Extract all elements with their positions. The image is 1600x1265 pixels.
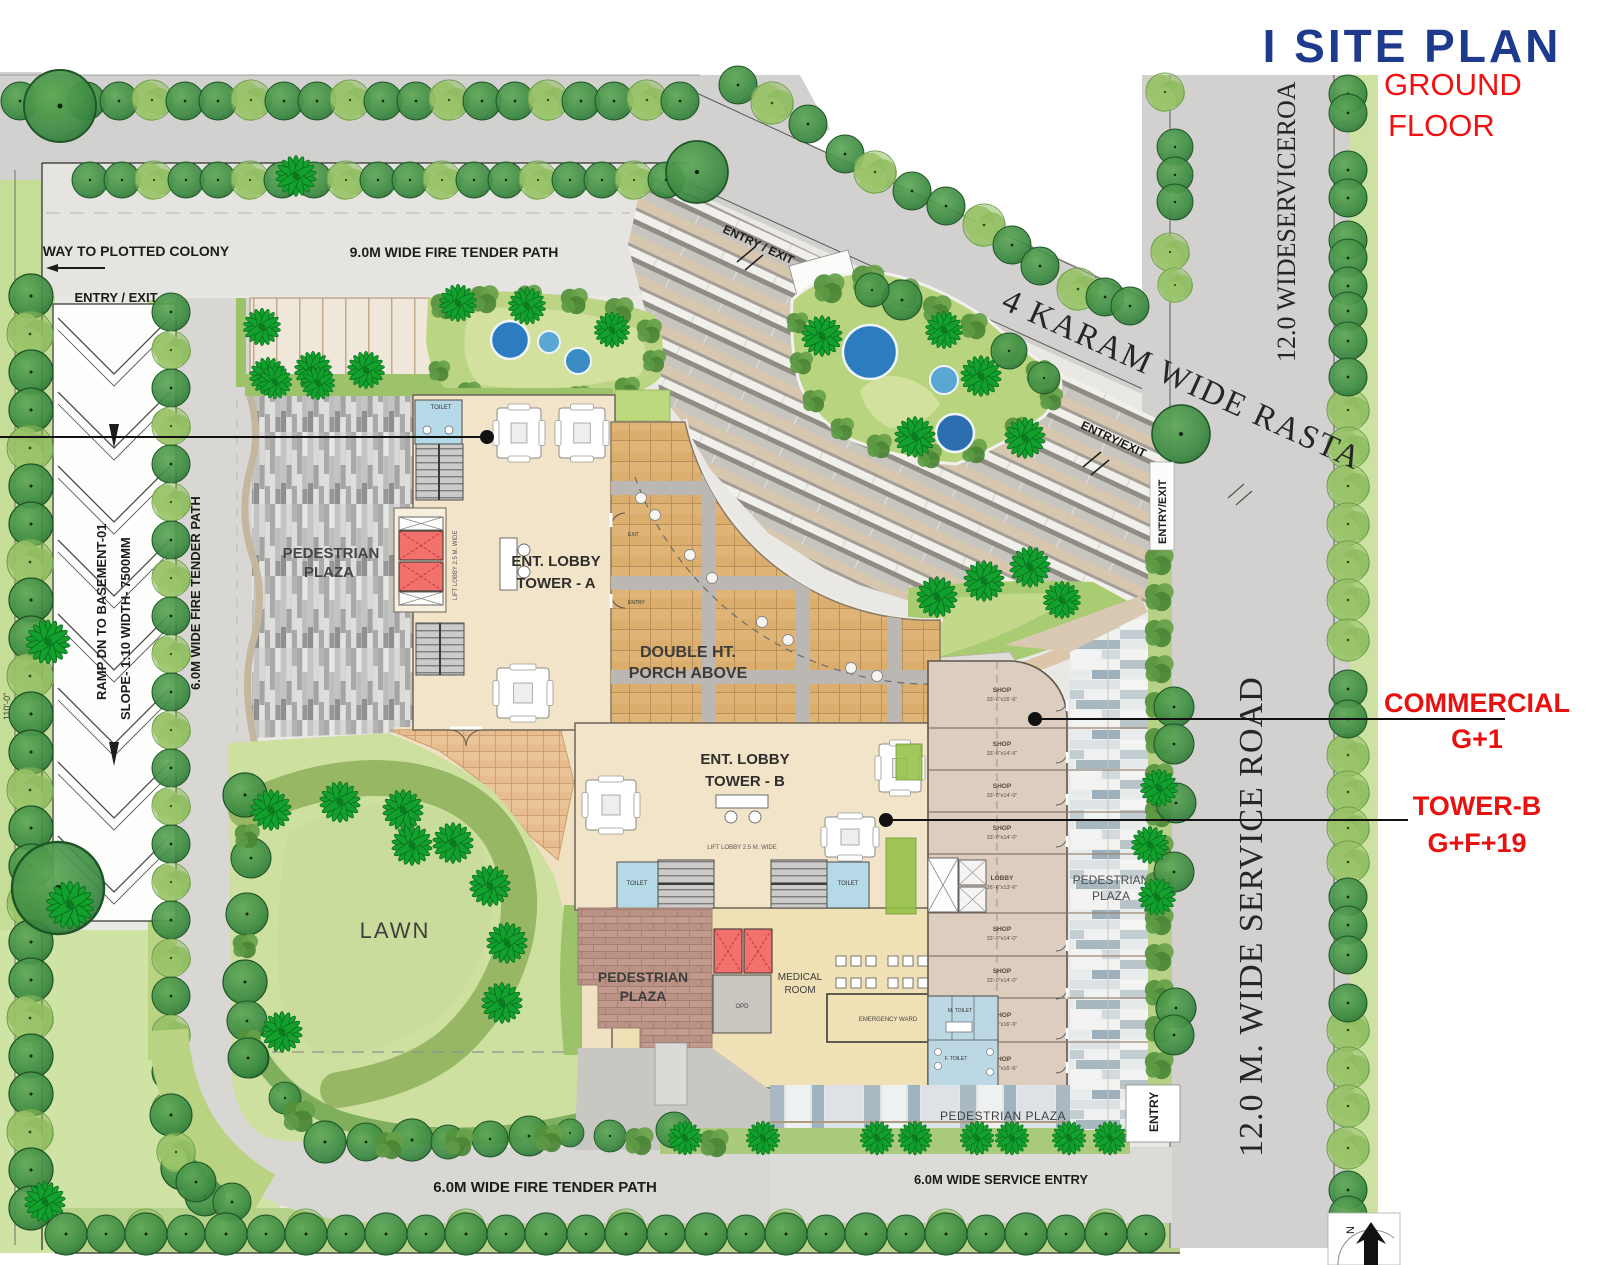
- svg-text:33'-0"x14'-0": 33'-0"x14'-0": [987, 978, 1018, 984]
- svg-text:M. TOILET: M. TOILET: [948, 1008, 972, 1014]
- svg-text:SHOP: SHOP: [993, 741, 1012, 748]
- svg-text:PEDESTRIAN: PEDESTRIAN: [283, 545, 380, 562]
- svg-text:ENTRY / EXIT: ENTRY / EXIT: [74, 290, 157, 305]
- svg-text:SHOP: SHOP: [993, 783, 1012, 790]
- svg-text:6.0M WIDE SERVICE ENTRY: 6.0M WIDE SERVICE ENTRY: [914, 1172, 1088, 1187]
- svg-text:ENT. LOBBY: ENT. LOBBY: [700, 751, 789, 768]
- svg-text:PEDESTRIAN: PEDESTRIAN: [598, 969, 688, 985]
- svg-text:PLAZA: PLAZA: [304, 564, 354, 581]
- svg-text:PLAZA: PLAZA: [1092, 889, 1130, 903]
- svg-text:SLOPE- 1:10 WIDTH- 7500MM: SLOPE- 1:10 WIDTH- 7500MM: [118, 537, 133, 720]
- svg-text:LIFT LOBBY 2.5 M. WIDE: LIFT LOBBY 2.5 M. WIDE: [707, 845, 776, 851]
- svg-text:FLOOR: FLOOR: [1388, 108, 1495, 143]
- svg-text:TOWER - B: TOWER - B: [705, 773, 785, 790]
- svg-text:I SITE PLAN: I SITE PLAN: [1263, 20, 1562, 72]
- svg-text:DOUBLE HT.: DOUBLE HT.: [640, 644, 736, 661]
- svg-text:SHOP: SHOP: [993, 825, 1012, 832]
- svg-text:PEDESTRIAN: PEDESTRIAN: [1073, 873, 1150, 887]
- svg-text:33'-0"x14'-0": 33'-0"x14'-0": [987, 835, 1018, 841]
- svg-text:ENTRY: ENTRY: [1147, 1092, 1161, 1132]
- svg-text:TOILET: TOILET: [627, 881, 648, 887]
- svg-text:33'-6"x14'-6": 33'-6"x14'-6": [987, 751, 1018, 757]
- svg-text:LAWN: LAWN: [360, 918, 431, 943]
- svg-text:SHOP: SHOP: [993, 687, 1012, 694]
- svg-text:6.0M WIDE FIRE TENDER PATH: 6.0M WIDE FIRE TENDER PATH: [433, 1179, 657, 1196]
- svg-text:TOWER - A: TOWER - A: [516, 575, 595, 592]
- svg-text:ENTRY: ENTRY: [628, 600, 646, 606]
- svg-text:G+1: G+1: [1451, 724, 1503, 754]
- svg-text:LIFT LOBBY 2.5 M. WIDE: LIFT LOBBY 2.5 M. WIDE: [453, 531, 459, 600]
- svg-text:PLAZA: PLAZA: [620, 988, 667, 1004]
- svg-text:33'-0"x14'-0": 33'-0"x14'-0": [987, 793, 1018, 799]
- svg-text:EMERGENCY WARD: EMERGENCY WARD: [859, 1017, 918, 1023]
- svg-text:SHOP: SHOP: [993, 968, 1012, 975]
- svg-text:12.0 M. WIDE SERVICE ROAD: 12.0 M. WIDE SERVICE ROAD: [1233, 676, 1270, 1157]
- svg-text:33'-6"x16'-6": 33'-6"x16'-6": [987, 697, 1018, 703]
- svg-text:9.0M WIDE FIRE TENDER PATH: 9.0M WIDE FIRE TENDER PATH: [350, 244, 559, 260]
- svg-text:EXIT: EXIT: [628, 532, 639, 538]
- svg-text:6.0M WIDE FIRE TENDER PATH: 6.0M WIDE FIRE TENDER PATH: [188, 496, 203, 690]
- svg-text:SHOP: SHOP: [993, 926, 1012, 933]
- svg-text:26'-6"x13'-6": 26'-6"x13'-6": [987, 885, 1018, 891]
- svg-text:PEDESTRIAN PLAZA: PEDESTRIAN PLAZA: [940, 1109, 1066, 1123]
- svg-text:LOBBY: LOBBY: [991, 875, 1014, 882]
- svg-text:COMMERCIAL: COMMERCIAL: [1384, 688, 1570, 718]
- svg-text:OPD: OPD: [735, 1004, 749, 1010]
- svg-text:12.0 WIDESERVICEROA: 12.0 WIDESERVICEROA: [1272, 81, 1301, 362]
- svg-text:ROOM: ROOM: [784, 985, 815, 996]
- svg-text:TOILET: TOILET: [431, 405, 452, 411]
- svg-text:PORCH ABOVE: PORCH ABOVE: [629, 665, 748, 682]
- svg-text:N: N: [1345, 1226, 1357, 1234]
- svg-text:G+F+19: G+F+19: [1427, 828, 1526, 858]
- svg-text:WAY TO PLOTTED COLONY: WAY TO PLOTTED COLONY: [43, 243, 230, 259]
- svg-text:TOWER-B: TOWER-B: [1413, 791, 1542, 821]
- svg-text:RAMP DN TO BASEMENT-01: RAMP DN TO BASEMENT-01: [94, 524, 109, 701]
- svg-text:ENTRY/EXIT: ENTRY/EXIT: [1157, 479, 1169, 544]
- svg-text:MEDICAL: MEDICAL: [778, 972, 823, 983]
- svg-text:GROUND: GROUND: [1384, 67, 1522, 102]
- svg-text:33'-0"x14'-0": 33'-0"x14'-0": [987, 936, 1018, 942]
- svg-text:F. TOILET: F. TOILET: [945, 1056, 968, 1062]
- svg-text:ENT. LOBBY: ENT. LOBBY: [511, 553, 600, 570]
- svg-text:TOILET: TOILET: [838, 881, 859, 887]
